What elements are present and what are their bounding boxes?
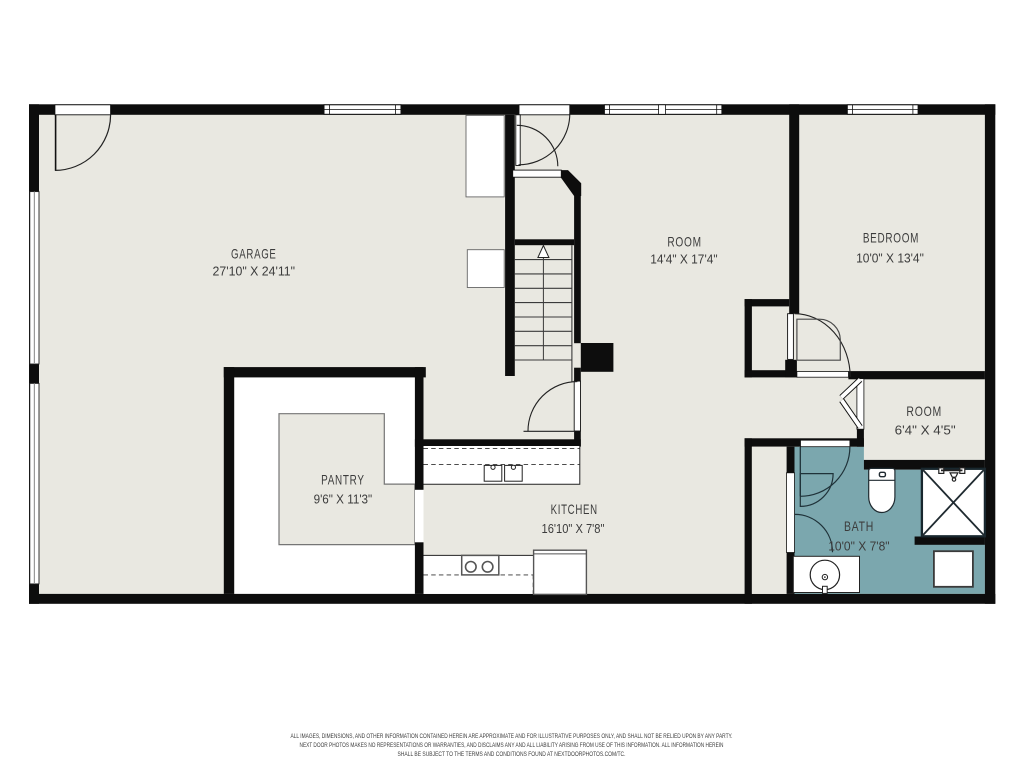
svg-text:GARAGE: GARAGE <box>231 246 277 262</box>
svg-text:BEDROOM: BEDROOM <box>863 229 919 245</box>
svg-text:16'10" X 7'8": 16'10" X 7'8" <box>542 521 605 536</box>
svg-text:10'0" X 7'8": 10'0" X 7'8" <box>828 539 890 554</box>
svg-text:ROOM: ROOM <box>906 403 942 419</box>
svg-text:27'10" X 24'11": 27'10" X 24'11" <box>213 263 296 278</box>
svg-text:ROOM: ROOM <box>667 233 701 249</box>
svg-text:10'0" X 13'4": 10'0" X 13'4" <box>856 251 924 266</box>
svg-text:PANTRY: PANTRY <box>321 472 365 488</box>
svg-text:KITCHEN: KITCHEN <box>551 501 598 517</box>
svg-text:BATH: BATH <box>844 518 874 534</box>
svg-text:9'6" X 11'3": 9'6" X 11'3" <box>314 492 373 507</box>
svg-text:ALL IMAGES, DIMENSIONS, AND OT: ALL IMAGES, DIMENSIONS, AND OTHER INFORM… <box>291 733 733 740</box>
svg-text:NEXT DOOR PHOTOS MAKES NO REPR: NEXT DOOR PHOTOS MAKES NO REPRESENTATION… <box>300 742 724 749</box>
svg-text:6'4" X 4'5": 6'4" X 4'5" <box>895 422 956 437</box>
svg-text:14'4" X 17'4": 14'4" X 17'4" <box>650 252 718 267</box>
svg-text:SHALL BE SUBJECT TO THE TERMS: SHALL BE SUBJECT TO THE TERMS AND CONDIT… <box>398 751 626 758</box>
